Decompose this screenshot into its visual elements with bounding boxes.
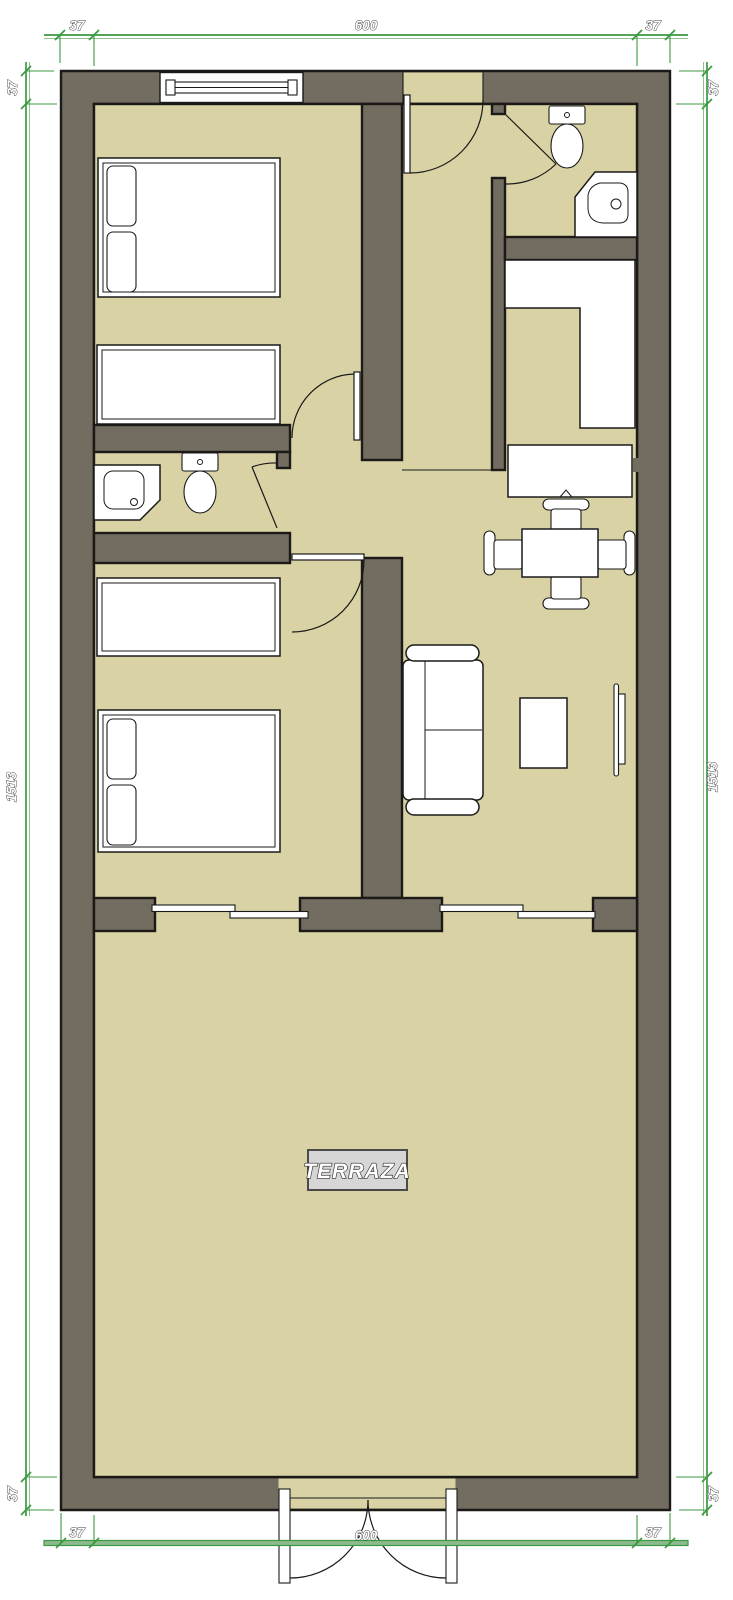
wall-bedroom2-top: [94, 533, 290, 563]
single-bed: [97, 578, 280, 656]
wall-bath1-bottom: [505, 237, 637, 260]
dining-table: [522, 529, 598, 577]
dim-left-top: 37: [5, 79, 20, 96]
wall-terrace-b: [300, 898, 442, 931]
sofa-armrest: [406, 645, 479, 661]
dim-bottom-left: 37: [69, 1525, 86, 1540]
wall-bath2-jamb: [277, 452, 290, 468]
wall-terrace-a: [94, 898, 155, 931]
wall-bedroom2-right: [362, 558, 402, 898]
dim-right-middle: 1513: [705, 761, 720, 792]
single-bed: [97, 345, 280, 424]
dim-left-middle: 1513: [4, 771, 19, 802]
dimension-right: 37 1513 37: [676, 62, 721, 1516]
desk: [508, 445, 632, 497]
dimension-top: 37 600 37: [44, 18, 688, 66]
dim-bottom-right: 37: [645, 1525, 662, 1540]
dim-top-right: 37: [645, 18, 662, 33]
dim-top-left: 37: [69, 18, 86, 33]
sofa-armrest: [406, 799, 479, 815]
dim-left-bottom: 37: [5, 1485, 20, 1502]
wall-terrace-c: [593, 898, 637, 931]
chair-back: [543, 598, 589, 609]
dim-right-bottom: 37: [706, 1485, 721, 1502]
chair-back: [543, 499, 589, 510]
wall-kitchen-left: [492, 178, 505, 470]
wall-bath1-jamb: [492, 104, 505, 114]
chair-back: [484, 531, 495, 575]
bedroom-2: [97, 578, 280, 852]
coffee-table: [520, 698, 567, 768]
double-bed: [98, 710, 280, 852]
floor-plan-page: TERRAZA 37 600 37 37 600 37: [0, 0, 733, 1600]
tv: [614, 684, 625, 776]
dim-top-middle: 600: [355, 18, 378, 33]
terrace-label: TERRAZA: [303, 1150, 410, 1190]
chair-seat: [597, 540, 626, 569]
terrace-label-text: TERRAZA: [303, 1160, 410, 1183]
dim-bottom-middle: 600: [355, 1528, 378, 1543]
chair-seat: [494, 540, 523, 569]
toilet: [549, 106, 585, 168]
floor-plan-drawing: TERRAZA 37 600 37 37 600 37: [0, 0, 733, 1600]
chair-seat: [551, 576, 581, 599]
bedroom-1: [97, 158, 280, 424]
dimension-left: 37 1513 37: [4, 62, 57, 1516]
toilet: [182, 453, 218, 513]
wall-bedroom1-bottom: [94, 425, 290, 452]
wall-hall-left: [362, 104, 402, 460]
sofa: [403, 645, 483, 815]
dim-right-top: 37: [706, 79, 721, 96]
double-bed: [98, 158, 280, 297]
wall-jamb-living: [633, 458, 641, 472]
chair-seat: [551, 509, 581, 531]
window: [160, 73, 303, 103]
